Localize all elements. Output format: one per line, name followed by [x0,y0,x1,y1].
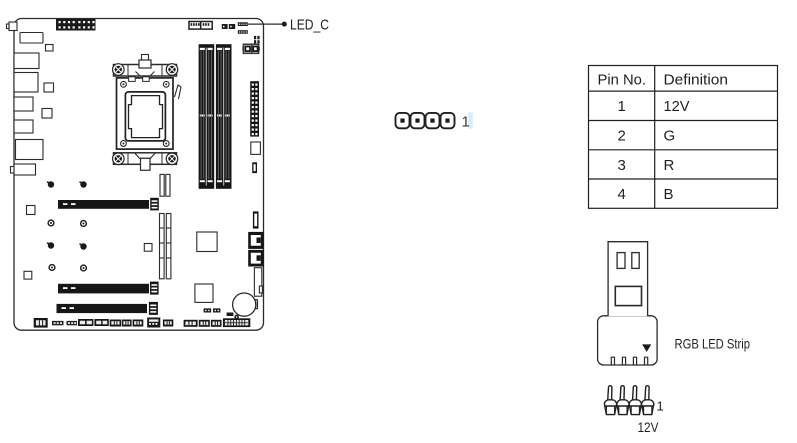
svg-text:1: 1 [618,98,626,115]
svg-text:2: 2 [618,128,626,145]
svg-text:RGB LED Strip: RGB LED Strip [675,336,751,352]
svg-text:Definition: Definition [664,72,729,89]
svg-text:LED_C: LED_C [290,17,329,34]
svg-text:Pin No.: Pin No. [598,72,647,89]
svg-text:12V: 12V [664,98,690,115]
svg-text:4: 4 [618,186,626,203]
svg-text:G: G [664,128,676,145]
svg-text:1: 1 [657,399,664,414]
svg-text:12V: 12V [638,419,660,435]
svg-text:1: 1 [462,114,470,131]
svg-text:B: B [664,186,674,203]
svg-text:3: 3 [618,157,626,174]
svg-text:R: R [664,157,675,174]
